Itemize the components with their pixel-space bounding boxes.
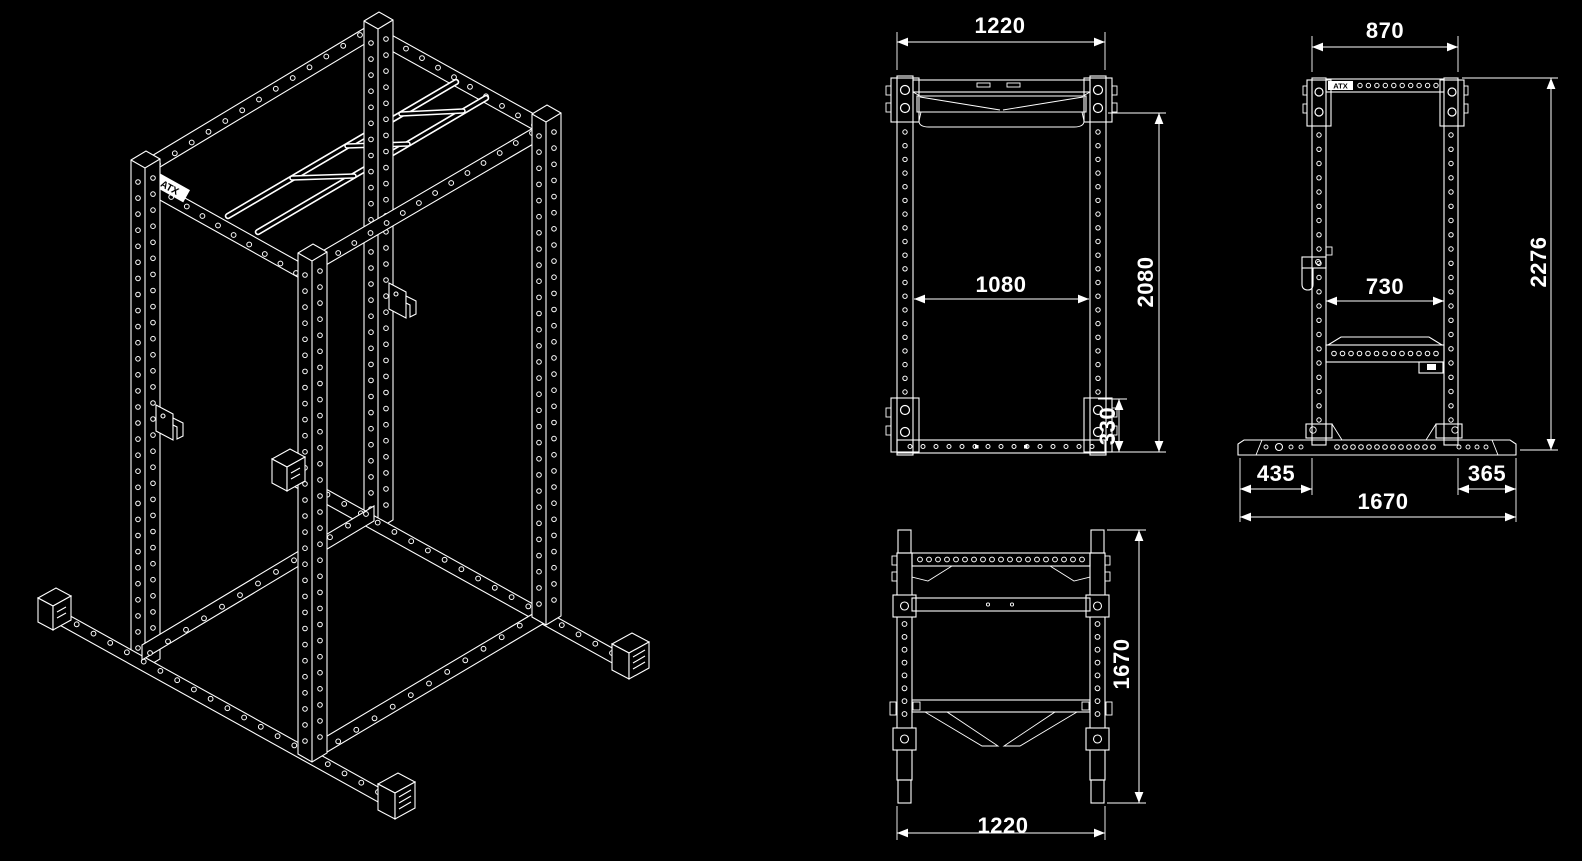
hole-row: [1096, 130, 1100, 394]
side-base-runner: [1238, 424, 1516, 455]
dim-front-inner-width: 1080: [976, 272, 1027, 298]
dim-side-front-overhang: 435: [1257, 461, 1295, 487]
dim-side-top-width: 870: [1366, 18, 1404, 44]
hole-row: [1095, 622, 1100, 717]
side-mid-beam: [1326, 337, 1444, 373]
blueprint-drawing: ATX: [0, 0, 1582, 861]
top-second-crossbeam: [912, 598, 1090, 611]
dim-top-depth: 1670: [1109, 639, 1135, 690]
iso-top-beam-right: [379, 28, 543, 135]
dim-side-total-depth: 1670: [1358, 489, 1409, 515]
front-crossmember: [913, 80, 1090, 127]
pullup-bar: [228, 82, 486, 232]
iso-base-beam-front: [142, 506, 374, 660]
dim-side-inner-depth: 730: [1366, 274, 1404, 300]
iso-upright-d: [298, 244, 327, 762]
iso-base-beam-rear: [312, 606, 546, 761]
top-view: [890, 530, 1146, 840]
front-view: [886, 32, 1166, 455]
hole-row: [908, 445, 1094, 449]
dim-front-height: 2080: [1133, 257, 1159, 308]
dim-front-base-height: 330: [1095, 407, 1121, 445]
iso-upright-b: [364, 12, 393, 529]
side-top-beam: ATX: [1326, 79, 1444, 92]
blueprint-canvas: ATX: [0, 0, 1582, 861]
side-j-hook: [1302, 247, 1332, 290]
iso-runner-right: [281, 464, 623, 669]
dim-front-outer-width: 1220: [975, 13, 1026, 39]
hole-row: [918, 557, 1085, 562]
hole-row: [1335, 445, 1436, 450]
isometric-view: ATX: [38, 12, 649, 819]
foot-cap-rear-right: [612, 633, 649, 679]
atx-logo-text-side: ATX: [1333, 82, 1347, 91]
hole-row: [1449, 133, 1453, 422]
hole-row: [1332, 351, 1439, 356]
hole-row: [902, 622, 907, 717]
front-base-beam: [897, 440, 1105, 453]
dim-top-width: 1220: [978, 813, 1029, 839]
iso-upright-c: [532, 105, 561, 625]
foot-cap-rear-left: [378, 773, 415, 819]
dim-side-rear-overhang: 365: [1468, 461, 1506, 487]
hole-row: [1317, 133, 1321, 422]
hole-row: [1358, 83, 1438, 87]
front-dimensions: [897, 32, 1166, 452]
dim-side-total-height: 2276: [1526, 237, 1552, 288]
front-plates: [886, 78, 1117, 452]
top-rear-assembly: [890, 700, 1112, 746]
top-front-crossbeam: [912, 553, 1090, 581]
hole-row: [903, 130, 907, 394]
iso-runner-left: [47, 603, 389, 808]
